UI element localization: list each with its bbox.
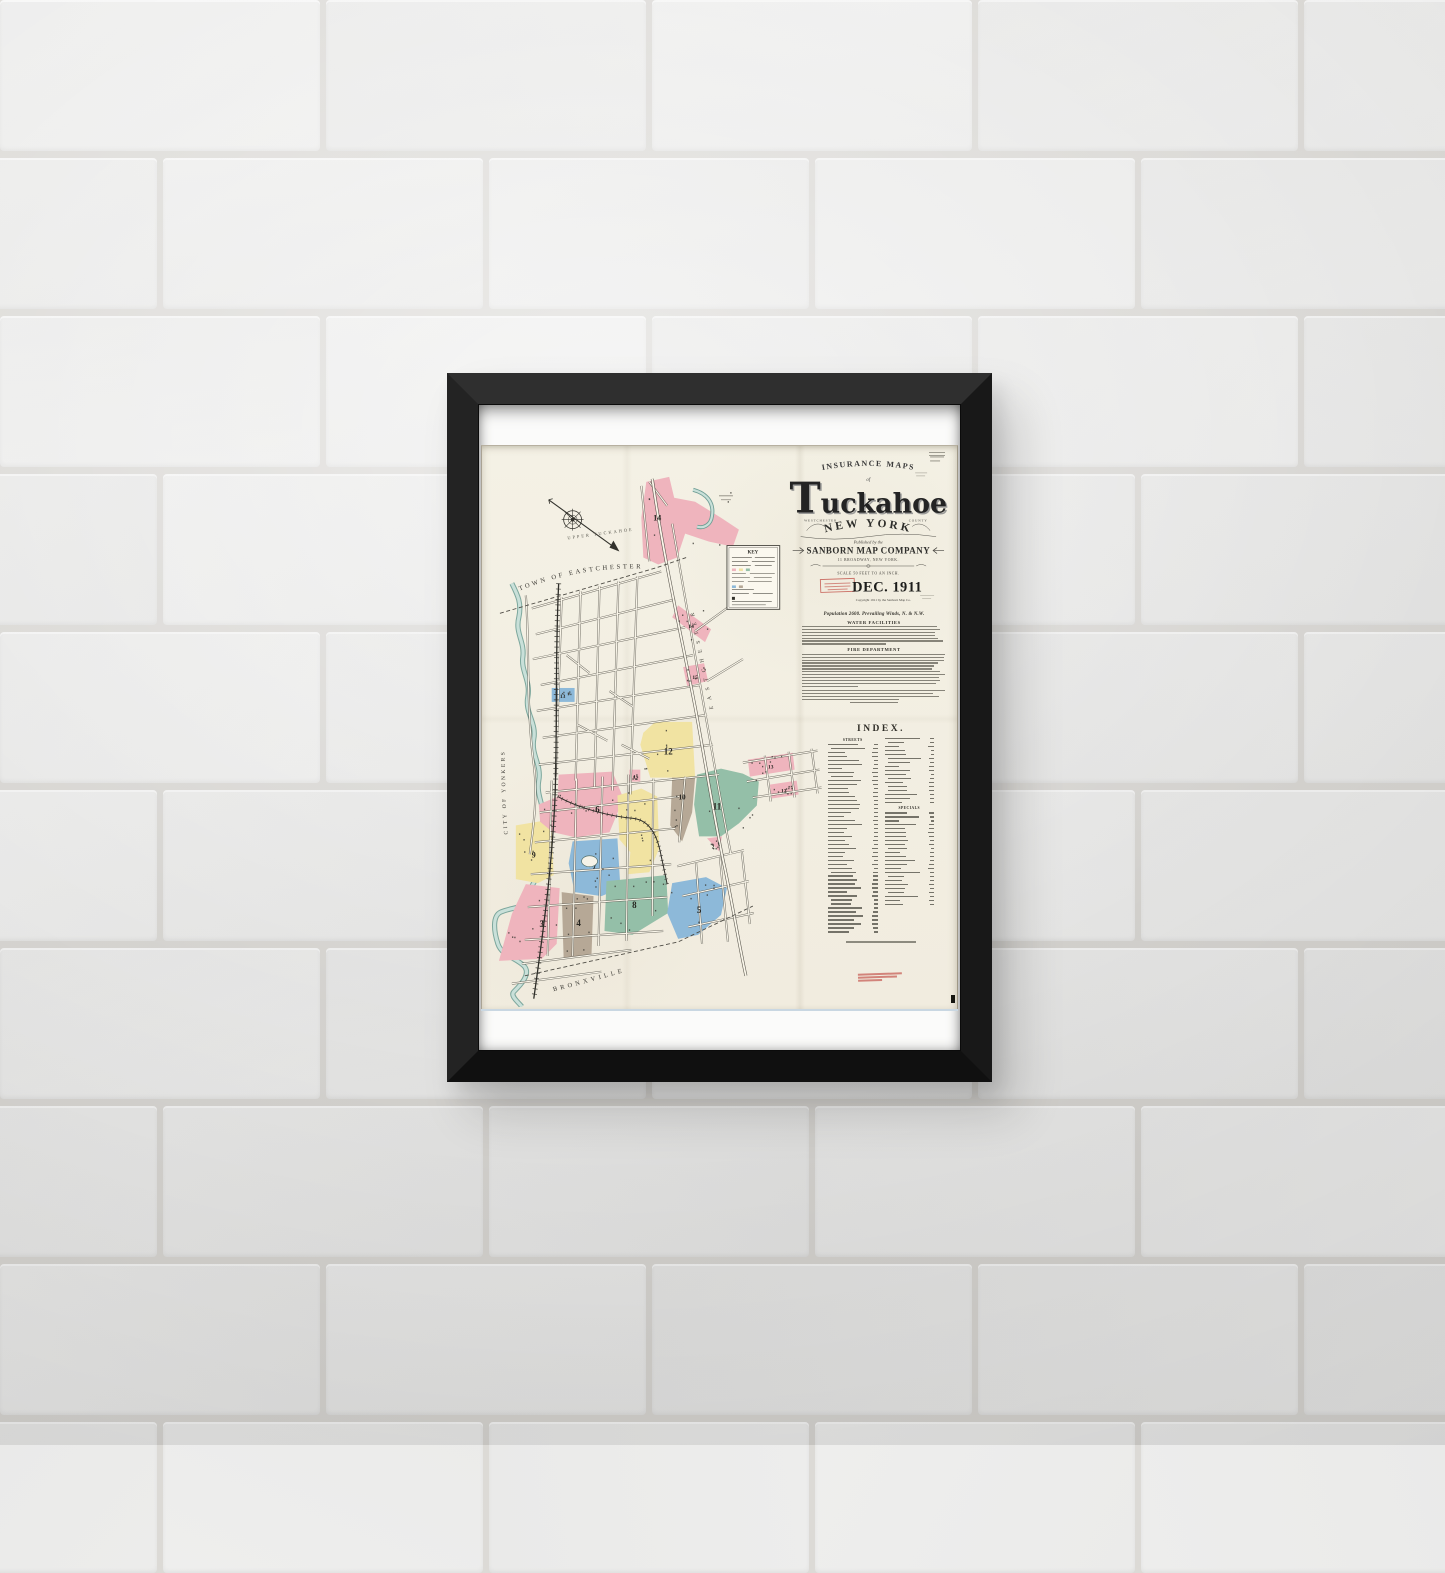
index-row [885,766,935,767]
flourish [811,564,927,568]
index-row [885,816,935,817]
index-row [831,872,878,873]
index-row [831,748,878,749]
index-row [888,876,935,877]
index-row [885,802,935,803]
text-line [802,632,935,633]
population-line: Population 2600. Prevailing Winds, N. & … [800,612,948,617]
index-row [885,860,935,861]
index-row [828,879,878,880]
building-dot [629,929,630,930]
index-row [885,856,935,857]
index-row [828,860,878,861]
index-row [828,772,878,773]
wall-brick [1141,474,1445,625]
index-row [885,794,935,795]
building-dot [752,814,753,815]
building-dot [709,811,710,812]
building-dot [519,941,520,942]
building-dot [713,888,714,889]
wall-brick [1304,948,1445,1099]
building-dot [595,853,596,854]
text-line [802,680,940,681]
index-row [828,832,878,833]
index-row [885,896,935,897]
building-dot [728,501,729,502]
index-row [828,887,878,888]
index-row [888,892,935,893]
wall-brick [1304,632,1445,783]
building-dot [650,860,651,861]
index-row [831,899,878,900]
district-3 [499,884,560,961]
building-dot [679,620,680,621]
building-dot [756,780,757,781]
index-column-left: STREETS [828,738,878,935]
index-row [828,760,878,761]
building-dot [666,730,667,731]
district-label: 9 [532,850,536,859]
text-line [802,674,945,675]
index-column-right: SPECIALS [885,738,935,935]
index-row [828,919,878,920]
building-dot [612,800,613,801]
district-label: 14 [688,624,694,630]
building-dot [649,498,650,499]
building-dot [667,770,668,771]
building-dot [611,917,612,918]
scale-note: SCALE 50 FEET TO AN INCH. [837,571,899,575]
call-number-scribble [920,595,934,598]
building-dot [587,898,588,899]
text-line [802,699,899,700]
building-dot [602,869,603,870]
district-label: 4 [576,918,581,928]
building-dot [749,817,750,818]
index-row [885,770,935,771]
map-paper: KEY [481,445,958,1009]
index-row [888,758,935,759]
wall-brick [1141,790,1445,941]
wall-brick [1304,1264,1445,1415]
index-row [828,808,878,809]
building-dot [713,885,714,886]
district-label: 13 [768,765,774,771]
building-dot [791,793,792,794]
building-dot [512,936,513,937]
building-dot [674,810,675,811]
building-dot [628,792,629,793]
published-by: Published by the [853,540,883,545]
building-dot [765,771,766,772]
index-row [885,754,935,755]
index-row [885,832,935,833]
building-dot [508,932,509,933]
village-label: BRONXVILLE [552,967,625,993]
county-right: COUNTY [909,519,928,523]
library-date-stamp [820,578,854,592]
district-label: 13 [560,694,566,700]
building-dot [569,691,570,692]
building-dot [687,621,688,622]
city-boundary-label: CITY OF YONKERS [501,750,510,835]
building-dot [676,819,677,820]
building-dot [707,628,708,629]
wall-brick [489,1106,809,1257]
building-dot [653,881,654,882]
series-title: INSURANCE MAPS [821,459,916,472]
text-line [802,657,944,658]
index-row [885,828,935,829]
wall-brick [978,0,1298,151]
wall-brick [0,632,320,783]
building-dot [759,762,760,763]
text-line [802,638,938,639]
index-row [885,900,935,901]
wall-brick [0,158,157,309]
building-dot [636,778,637,779]
index-row [828,756,878,757]
text-line [802,693,933,694]
building-dot [751,762,752,763]
text-line [802,626,937,627]
index-row [828,784,878,785]
building-dot [543,831,544,832]
building-dot [556,924,557,925]
building-dot [646,881,647,882]
index-row [885,812,935,813]
index-row [828,804,878,805]
index-row [828,836,878,837]
building-dot [719,544,720,545]
wall-brick [163,1106,483,1257]
compass-rose-icon [549,499,620,552]
building-dot [707,894,708,895]
text-line [802,668,932,669]
index-row [828,907,878,908]
wall-brick [163,158,483,309]
index-row [885,798,935,799]
wall-brick [489,158,809,309]
building-dot [675,826,676,827]
building-dot [615,886,616,887]
index-row [885,868,935,869]
building-dot [716,840,717,841]
building-dot [539,900,540,901]
building-dot [788,788,789,789]
wall-brick [652,1264,972,1415]
building-dot [690,898,691,899]
building-dot [730,492,731,493]
index-row [828,780,878,781]
building-dot [519,833,520,834]
index-row [885,824,935,825]
index-row [828,852,878,853]
building-dot [633,886,634,887]
building-dot [705,884,706,885]
index-note [846,941,916,942]
building-dot [718,843,719,844]
building-dot [568,693,569,694]
wall-brick [0,1264,320,1415]
wall-brick [1304,316,1445,467]
district-label: 12 [781,789,787,795]
wall-brick [978,632,1298,783]
index-row [828,820,878,821]
building-dot [524,851,525,852]
series-of: of [866,478,870,483]
index-row [828,931,878,932]
building-dot [608,874,609,875]
building-dot [634,810,635,811]
special-entries [885,812,935,905]
text-line [802,635,935,636]
index-row [828,864,878,865]
wall-brick [978,1264,1298,1415]
building-dot [657,754,658,755]
index-row [885,884,935,885]
building-dot [698,922,699,923]
building-dot [682,614,683,615]
building-dot [687,680,688,681]
title-block: INSURANCE MAPS of Tuckahoe Tuckahoe WEST… [790,457,949,602]
wall-brick [0,474,157,625]
text-line [802,640,943,641]
index-row [828,816,878,817]
building-dot [568,934,569,935]
building-dot [571,812,572,813]
building-dot [778,791,779,792]
company-address: 11 BROADWAY, NEW YORK. [838,558,899,563]
key-title: KEY [747,551,758,556]
index-row [888,742,935,743]
index-row [828,824,878,825]
building-dot [532,928,533,929]
wall-brick [0,316,320,467]
index-row [888,762,935,763]
building-dot [597,878,598,879]
text-line [802,654,945,655]
index-row [888,848,935,849]
building-dot [531,859,532,860]
district-label: 10 [679,794,686,802]
company-name: SANBORN MAP COMPANY [807,546,931,556]
streets-heading: STREETS [828,738,878,742]
wall-brick [1141,158,1445,309]
plate-note-marks [930,457,944,461]
map-key: KEY [727,546,780,610]
index-row [888,790,935,791]
building-dot [723,919,724,920]
building-dot [654,534,655,535]
wall-brick [1141,1106,1445,1257]
index-row [828,812,878,813]
wall-brick [815,158,1135,309]
building-dot [560,795,561,796]
index-row [828,856,878,857]
building-dot [641,834,642,835]
wall-brick [326,1264,646,1415]
building-dot [788,786,789,787]
water-paragraph [802,626,946,645]
specials-heading: SPECIALS [885,806,935,810]
district-label: 6 [595,804,600,814]
footnote-line [850,702,898,703]
building-dot [636,774,637,775]
upper-tuckahoe-label: UPPER TUCKAHOE [567,527,634,541]
district-label: 14 [653,514,661,523]
building-dot [671,892,672,893]
statistics-block: Population 2600. Prevailing Winds, N. & … [800,612,948,703]
index-row [828,923,878,924]
index-row [885,738,935,739]
building-dot [676,825,677,826]
building-dot [644,768,645,769]
index-row [828,911,878,912]
building-dot [791,786,792,787]
wall-brick [978,316,1298,467]
building-dot [567,950,568,951]
building-dot [595,886,596,887]
index-row [888,786,935,787]
index-row [828,800,878,801]
index-row [828,895,878,896]
index-row [885,844,935,845]
district-label: 5 [697,905,702,915]
text-line [802,677,939,678]
index-row [885,840,935,841]
index-row [828,927,878,928]
wall-brick [1304,0,1445,151]
copyright-line: Copyright 1911 by the Sanborn Map Co. [856,598,911,602]
street-entries [885,738,935,803]
building-dot [703,610,704,611]
edition-date: DEC. 1911 [852,579,922,595]
building-dot [642,838,643,839]
index-row [885,852,935,853]
index-row [888,778,935,779]
index-row [885,872,935,873]
building-dot [575,907,576,908]
text-line [802,683,936,684]
wall-brick [0,790,157,941]
building-dot [595,880,596,881]
building-dot [738,808,739,809]
fire-paragraph [802,654,946,687]
index-row [885,836,935,837]
building-dot [781,756,782,757]
text-line [802,660,944,661]
index-row [885,864,935,865]
text-line [802,643,886,644]
building-dot [585,810,586,811]
building-dot [642,840,643,841]
wall-brick [326,0,646,151]
wall-brick [163,790,483,941]
notes-paragraph [802,690,946,700]
index-row [885,750,935,751]
building-dot [581,806,582,807]
index-row [828,915,878,916]
building-dot [613,858,614,859]
index-row [885,782,935,783]
district-label: 15 [692,675,698,681]
building-dot [570,694,571,695]
building-dot [718,845,719,846]
poster-mat: KEY [479,405,960,1050]
index-row [828,788,878,789]
wall-brick [978,948,1298,1099]
index-row [828,744,878,745]
index-row [828,752,878,753]
building-dot [762,766,763,767]
wall-brick [652,0,972,151]
pond [582,856,598,867]
date-scribble [915,473,927,476]
index-row [885,904,935,905]
index-row [828,848,878,849]
text-line [802,665,934,666]
text-line [802,671,940,672]
index-row [885,880,935,881]
wall-brick [0,1106,157,1257]
street-entries [828,744,878,933]
building-dot [676,796,677,797]
building-dot [588,932,589,933]
building-dot [655,910,656,911]
water-heading: WATER FACILITIES [800,620,948,625]
index-row [828,868,878,869]
index-row [885,746,935,747]
building-dot [514,937,515,938]
building-dot [663,884,664,885]
collection-stamp [858,972,904,983]
building-dot [583,949,584,950]
index-row [828,844,878,845]
building-dot [774,789,775,790]
index-row [828,796,878,797]
wall-brick [0,0,320,151]
wall-brick [163,474,483,625]
building-dot [691,639,692,640]
building-dot [583,896,584,897]
building-dot [644,803,645,804]
index-row [885,820,935,821]
text-line [802,686,858,687]
index-title: INDEX. [828,724,934,734]
building-dot [555,692,556,693]
index-row [831,776,878,777]
index-row [828,875,878,876]
building-dot [743,827,744,828]
index-row [828,764,878,765]
building-dot [566,908,567,909]
index-row [828,840,878,841]
index-row [828,828,878,829]
building-dot [523,839,524,840]
index-block: INDEX. STREETS SPECIALS [828,724,934,943]
district-label: 3 [540,919,545,929]
text-line [802,629,940,630]
district-label: 8 [632,900,637,910]
index-row [828,883,878,884]
building-dot [620,923,621,924]
index-row [828,792,878,793]
index-row [885,774,935,775]
building-dot [689,680,690,681]
fire-heading: FIRE DEPARTMENT [800,647,948,652]
index-row [885,888,935,889]
